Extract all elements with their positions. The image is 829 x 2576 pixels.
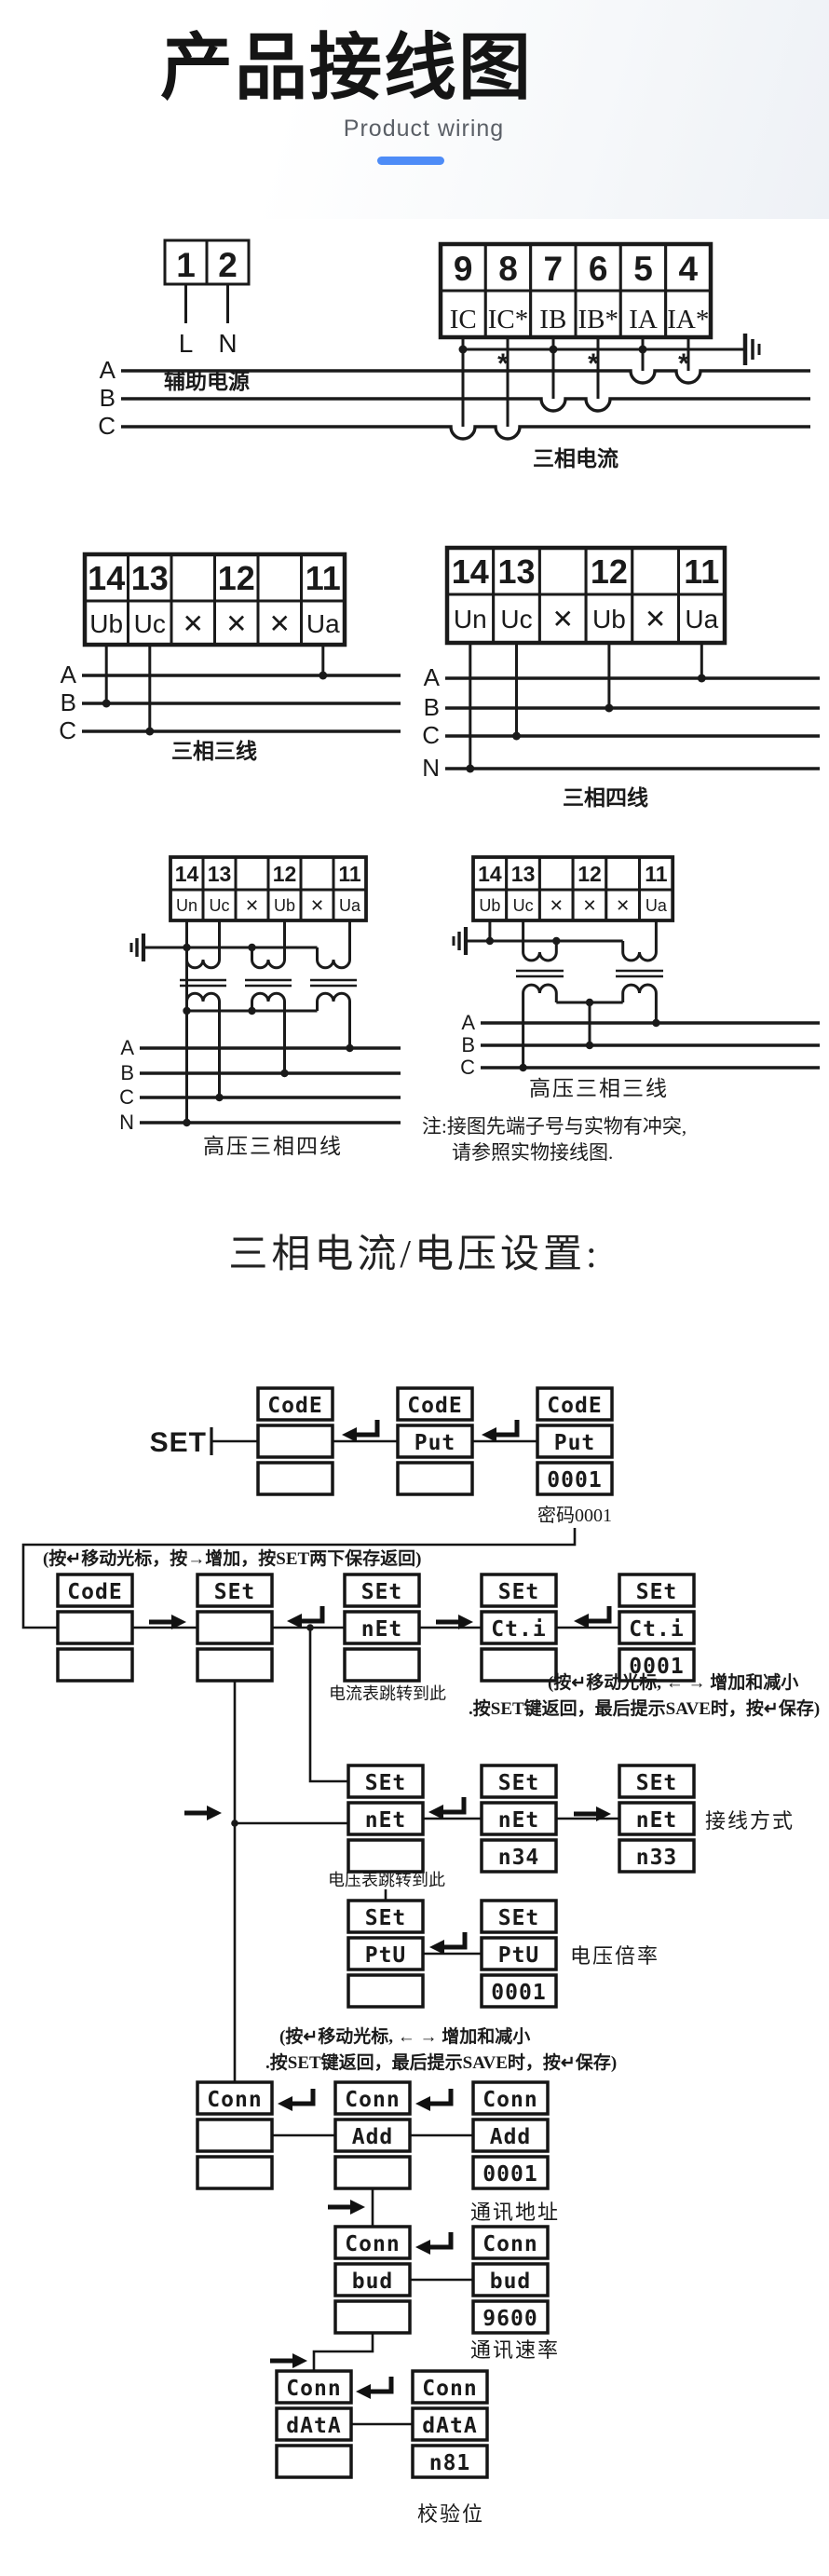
enter-arrow-icon — [356, 2377, 391, 2399]
t-label: ✕ — [225, 609, 247, 638]
t-num: 11 — [306, 559, 341, 597]
lcd-stack-r5s3: Conn Add 0001 — [473, 2082, 548, 2188]
t-label: Un — [454, 605, 487, 634]
t-label: Ub — [592, 605, 626, 634]
ct-num: 8 — [498, 250, 518, 288]
t-label: Uc — [210, 896, 230, 915]
lcd-line: SEt — [361, 1580, 403, 1604]
t-num: 12 — [218, 559, 255, 597]
t-num: 11 — [338, 862, 361, 886]
lcd-stack-r2s2: SEt — [197, 1574, 272, 1681]
four-wire-terminal-block: 14 13 12 11 Un Uc ✕ Ub ✕ Ua — [447, 548, 725, 643]
lcd-stack-r4s1: SEt PtU — [348, 1901, 423, 2007]
comm-address-label: 通讯地址 — [470, 2201, 560, 2224]
t-label: ✕ — [550, 896, 564, 915]
lcd-line: Conn — [345, 2088, 400, 2112]
lcd-stack-r1s1: CodE — [258, 1388, 333, 1494]
lcd-line: bud — [490, 2269, 532, 2294]
aux-wire-L: L — [179, 329, 194, 358]
t-num: 12 — [273, 862, 297, 886]
lcd-line: Conn — [422, 2377, 477, 2401]
aux-terminal-1: 1 — [176, 246, 196, 284]
hint-a1: (按↵移动光标, ← → 增加和减小 — [548, 1671, 798, 1693]
enter-arrow-icon — [415, 2232, 451, 2255]
ct-label: IB — [539, 305, 566, 334]
ct-num: 5 — [633, 250, 653, 288]
t-num: 13 — [511, 862, 536, 886]
ground-icon — [745, 334, 759, 365]
voltmeter-caption: 电压表跳转到此 — [328, 1871, 445, 1889]
enter-arrow-icon — [278, 2089, 313, 2111]
t-label: ✕ — [310, 896, 324, 915]
lcd-line: PtU — [365, 1943, 407, 1968]
settings-flowchart: SET CodE CodE Put CodE Put 0001 密码0001 (… — [0, 1346, 829, 2576]
phase-B: B — [461, 1033, 475, 1056]
ct-num: 6 — [589, 250, 608, 288]
ct-num: 9 — [454, 250, 473, 288]
t-label: Ub — [479, 896, 500, 915]
t-label: Ua — [339, 896, 361, 915]
lcd-line: Conn — [286, 2377, 341, 2401]
hv-three-wire-wires — [466, 920, 820, 1071]
ct-label: IA — [629, 305, 658, 334]
t-num: 14 — [452, 552, 489, 591]
lcd-line: Ct.i — [629, 1617, 684, 1642]
lcd-line: Conn — [207, 2088, 262, 2112]
lcd-stack-r7s2: Conn dAtA n81 — [413, 2371, 487, 2477]
polarity-mark: * — [678, 348, 689, 379]
ammeter-caption: 电流表跳转到此 — [329, 1684, 446, 1703]
password-caption: 密码0001 — [537, 1505, 612, 1526]
lcd-line: SEt — [498, 1580, 540, 1604]
lcd-stack-r1s3: CodE Put 0001 — [537, 1388, 612, 1494]
t-num: 14 — [175, 862, 199, 886]
enter-arrow-icon — [574, 1606, 609, 1629]
t-num: 11 — [684, 552, 719, 591]
note-line1: 注:接图先端子号与实物有冲突, — [422, 1115, 686, 1138]
lcd-line: Conn — [345, 2232, 400, 2256]
hint-b1: (按↵移动光标, ← → 增加和减小 — [279, 2025, 530, 2047]
lcd-line: Conn — [482, 2232, 537, 2256]
lcd-stack-r5s2: Conn Add — [335, 2082, 410, 2188]
lcd-line: CodE — [407, 1394, 462, 1418]
phase-current-caption: 三相电流 — [533, 446, 618, 470]
hint-a2: .按SET键返回，最后提示SAVE时，按↵保存) — [469, 1697, 820, 1719]
phase-B: B — [424, 693, 440, 721]
lcd-stack-r6s1: Conn bud — [335, 2227, 410, 2333]
hv-four-wire-caption: 高压三相四线 — [203, 1135, 343, 1158]
lcd-line: Add — [490, 2125, 532, 2149]
aux-caption: 辅助电源 — [164, 369, 250, 393]
lcd-stack-r2s5: SEt Ct.i 0001 — [619, 1574, 694, 1681]
aux-wires — [186, 284, 228, 323]
hv-three-wire-diagram: 14 13 12 11 Ub Uc ✕ ✕ ✕ Ua — [454, 857, 820, 1100]
lcd-line: nEt — [361, 1617, 403, 1642]
phase-A: A — [424, 663, 441, 691]
page-subtitle: Product wiring — [307, 116, 540, 143]
lcd-stack-r1s2: CodE Put — [398, 1388, 472, 1494]
t-label: ✕ — [268, 609, 290, 638]
lcd-stack-r5s1: Conn — [197, 2082, 272, 2188]
t-num: 12 — [591, 552, 628, 591]
lcd-stack-r2s3: SEt nEt — [345, 1574, 419, 1681]
t-label: ✕ — [616, 896, 630, 915]
t-num: 13 — [208, 862, 232, 886]
phase-B: B — [61, 688, 76, 716]
wiring-mode-label: 接线方式 — [705, 1809, 795, 1833]
parity-label: 校验位 — [417, 2502, 484, 2526]
ground-icon — [131, 934, 143, 961]
accent-bar — [377, 157, 444, 165]
lcd-stack-r2s1: CodE — [58, 1574, 132, 1681]
t-num: 13 — [497, 552, 535, 591]
aux-terminal-2: 2 — [218, 246, 238, 284]
lcd-line: 0001 — [482, 2162, 537, 2187]
hint-top: (按↵移动光标，按→增加，按SET两下保存返回) — [43, 1547, 422, 1569]
t-num: 14 — [478, 862, 502, 886]
lcd-stack-r2s4: SEt Ct.i — [482, 1574, 556, 1681]
enter-arrow-icon — [342, 1420, 377, 1442]
right-arrow-icon — [184, 1806, 222, 1820]
four-wire-caption: 三相四线 — [563, 785, 648, 810]
phase-current-terminal-block: 9 8 7 6 5 4 IC IC* IB IB* IA IA* — [441, 244, 711, 337]
lcd-line: SEt — [365, 1906, 407, 1930]
lcd-line: PtU — [498, 1943, 540, 1968]
enter-arrow-icon — [429, 1932, 465, 1955]
ground-icon — [454, 927, 466, 955]
polarity-mark: * — [497, 348, 509, 379]
note-line2: 请参照实物接线图. — [452, 1141, 613, 1164]
lcd-line: Put — [554, 1431, 596, 1455]
ct-label: IC — [450, 305, 477, 334]
lcd-line: SEt — [636, 1771, 678, 1795]
three-wire-terminal-block: 14 13 12 11 Ub Uc ✕ ✕ ✕ Ua — [85, 554, 345, 645]
hv-four-wire-wires — [140, 920, 401, 1126]
t-label: Un — [176, 896, 197, 915]
lcd-line: dAtA — [286, 2414, 341, 2438]
ct-label: IA* — [667, 305, 709, 334]
enter-arrow-icon — [482, 1420, 517, 1442]
phase-A: A — [61, 661, 77, 688]
phase-A: A — [120, 1036, 134, 1059]
right-arrow-icon — [270, 2353, 307, 2368]
ct-label: IC* — [488, 305, 529, 334]
lcd-line: 9600 — [482, 2307, 537, 2331]
lcd-line: SEt — [214, 1580, 256, 1604]
enter-arrow-icon — [428, 1797, 464, 1820]
lcd-line: nEt — [498, 1808, 540, 1833]
t-label: Ua — [646, 896, 668, 915]
lcd-line: n34 — [498, 1846, 540, 1870]
t-label: Ub — [274, 896, 295, 915]
lcd-stack-r3s1: SEt nEt — [348, 1765, 423, 1872]
enter-arrow-icon — [287, 1606, 322, 1629]
t-label: Ua — [685, 605, 718, 634]
hv-three-wire-terminal-block: 14 13 12 11 Ub Uc ✕ ✕ ✕ Ua — [473, 857, 673, 920]
lcd-line: 0001 — [547, 1468, 602, 1492]
phase-N: N — [119, 1111, 134, 1134]
lcd-line: nEt — [365, 1808, 407, 1833]
voltage-ratio-label: 电压倍率 — [570, 1944, 659, 1968]
lcd-line: n81 — [429, 2451, 471, 2475]
phase-C: C — [460, 1056, 475, 1079]
phase-C: C — [119, 1085, 134, 1109]
wiring-diagrams: 1 2 L N 辅助电源 9 8 7 6 5 4 IC IC — [0, 224, 829, 1183]
lcd-line: Put — [414, 1431, 456, 1455]
right-arrow-icon — [328, 2200, 365, 2215]
t-label: ✕ — [582, 896, 596, 915]
ct-num: 4 — [679, 250, 699, 288]
set-key-label: SET — [150, 1427, 207, 1458]
lcd-stack-r7s1: Conn dAtA — [277, 2371, 351, 2477]
three-wire-caption: 三相三线 — [171, 739, 257, 763]
lcd-line: SEt — [636, 1580, 678, 1604]
three-wire-wires — [82, 645, 401, 736]
lcd-line: bud — [352, 2269, 394, 2294]
phase-B: B — [100, 384, 116, 412]
t-num: 11 — [645, 862, 668, 886]
four-wire-wires — [445, 643, 820, 773]
three-wire-diagram: 14 13 12 11 Ub Uc ✕ ✕ ✕ Ua A — [59, 554, 401, 763]
lcd-line: Add — [352, 2125, 394, 2149]
t-label: ✕ — [645, 605, 666, 634]
lcd-stack-r4s2: SEt PtU 0001 — [482, 1901, 556, 2007]
aux-wire-N: N — [218, 329, 237, 358]
phase-C: C — [422, 721, 440, 749]
lcd-line: Conn — [482, 2088, 537, 2112]
lcd-stack-r3s3: SEt nEt n33 — [619, 1765, 694, 1872]
polarity-mark: * — [588, 348, 599, 379]
lcd-stack-r6s2: Conn bud 9600 — [473, 2227, 548, 2333]
t-label: Uc — [134, 609, 166, 638]
phase-C: C — [59, 716, 76, 744]
lcd-line: 0001 — [491, 1981, 546, 2005]
hv-three-wire-caption: 高压三相三线 — [529, 1077, 669, 1100]
t-num: 13 — [131, 559, 169, 597]
t-label: Uc — [500, 605, 532, 634]
four-wire-diagram: 14 13 12 11 Un Uc ✕ Ub ✕ Ua — [422, 548, 820, 810]
phase-A: A — [100, 356, 116, 384]
lcd-line: SEt — [365, 1771, 407, 1795]
t-num: 14 — [88, 559, 125, 597]
t-label: Uc — [513, 896, 534, 915]
note: 注:接图先端子号与实物有冲突, 请参照实物接线图. — [422, 1115, 686, 1164]
t-label: ✕ — [245, 896, 259, 915]
lcd-line: Ct.i — [491, 1617, 546, 1642]
phase-C: C — [98, 412, 116, 440]
lcd-line: CodE — [547, 1394, 602, 1418]
phase-B: B — [120, 1061, 134, 1084]
lcd-line: SEt — [498, 1771, 540, 1795]
hint-b2: .按SET键返回，最后提示SAVE时，按↵保存) — [265, 2051, 617, 2073]
lcd-line: n33 — [636, 1846, 678, 1870]
lcd-stack-r3s2: SEt nEt n34 — [482, 1765, 556, 1872]
t-label: ✕ — [551, 605, 573, 634]
lcd-line: CodE — [267, 1394, 322, 1418]
comm-baud-label: 通讯速率 — [470, 2338, 560, 2362]
wiring-diagram-page: 产品接线图 Product wiring 1 2 L N 辅助电源 9 — [0, 0, 829, 2576]
lcd-line: nEt — [636, 1808, 678, 1833]
page-title: 产品接线图 — [0, 9, 693, 114]
phase-A: A — [461, 1011, 475, 1034]
lcd-line: CodE — [67, 1580, 122, 1604]
lcd-line: dAtA — [422, 2414, 477, 2438]
phase-N: N — [422, 754, 440, 782]
t-label: Ua — [306, 609, 340, 638]
t-label: Ub — [89, 609, 123, 638]
ct-num: 7 — [544, 250, 564, 288]
t-label: ✕ — [182, 609, 203, 638]
t-num: 12 — [578, 862, 602, 886]
lcd-line: SEt — [498, 1906, 540, 1930]
settings-section-title: 三相电流/电压设置: — [0, 1222, 829, 1279]
hv-four-wire-diagram: 14 13 12 11 Un Uc ✕ Ub ✕ Ua — [119, 857, 401, 1158]
enter-arrow-icon — [415, 2089, 451, 2111]
ct-label: IB* — [578, 305, 618, 334]
hv-four-wire-terminal-block: 14 13 12 11 Un Uc ✕ Ub ✕ Ua — [170, 857, 366, 920]
